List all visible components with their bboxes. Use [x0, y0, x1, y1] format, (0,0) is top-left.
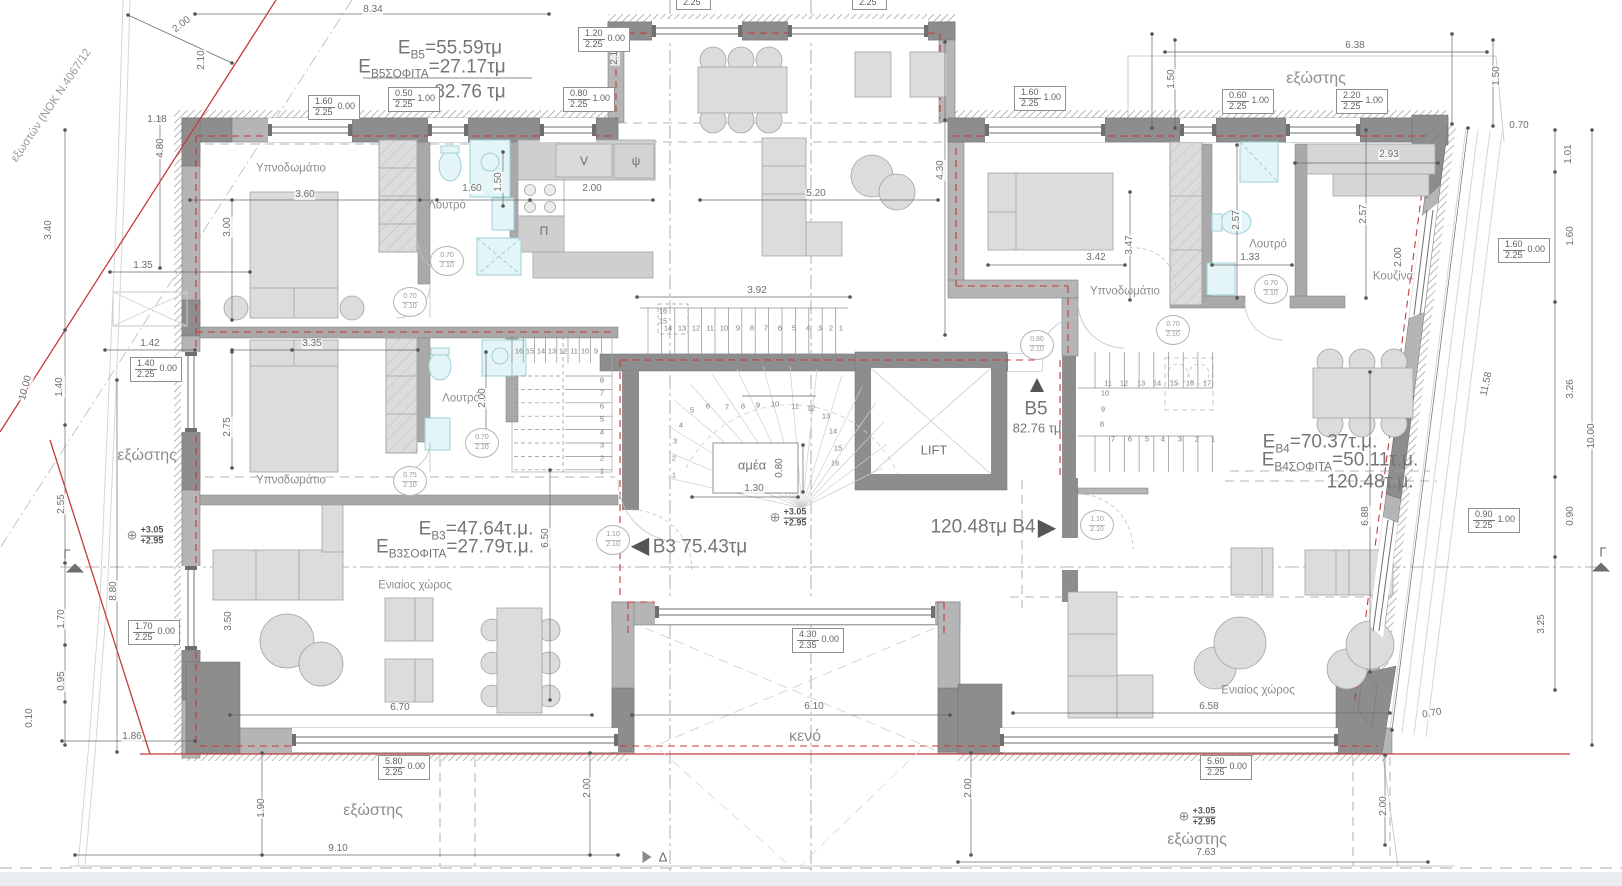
section-marker-label: Γ [1599, 545, 1606, 560]
stair-tread-number: 8 [1100, 420, 1104, 428]
window-tag: 0.602.251.00 [1222, 89, 1274, 114]
dimension-label: 6.38 [1344, 41, 1365, 51]
stair-tread-number: 1 [600, 467, 604, 475]
dimension-label: 1.35 [132, 261, 153, 271]
window-tag: 5.802.250.00 [378, 755, 430, 780]
door-tag: 0.702.10 [430, 246, 464, 276]
room-label: Λουτρό [442, 393, 480, 405]
apartment-area-label: B5 [1024, 400, 1047, 419]
dimension-label: 0.90 [1566, 505, 1576, 526]
window-tag: 0.502.25 [852, 0, 887, 10]
door-tag: 0.702.10 [1254, 274, 1288, 304]
apartment-area-label: B3 75.43τμ [653, 538, 748, 557]
stair-tread-number: 12 [807, 404, 815, 412]
dimension-label: 6.50 [541, 527, 551, 548]
dimension-label: 3.50 [224, 610, 234, 631]
dimension-label: 3.47 [1125, 234, 1135, 255]
apartment-marker-icon: ▲ [1025, 373, 1049, 397]
stair-tread-number: 11 [1104, 379, 1112, 387]
stair-tread-number: 3 [818, 324, 822, 332]
area-label: εξώστης [1167, 832, 1227, 848]
dimension-label: 2.00 [1379, 795, 1389, 816]
dimension-label: 1.33 [1239, 253, 1260, 263]
window-tag: 2.202.251.00 [1336, 89, 1388, 114]
dimension-label: 82.76 τμ [1013, 422, 1062, 435]
stair-tread-number: 4 [679, 421, 683, 429]
window-tag: 0.802.251.00 [563, 87, 615, 112]
stair-tread-number: 2 [600, 454, 604, 462]
stair-tread-number: 11 [791, 402, 799, 410]
dimension-label: 2.75 [223, 416, 233, 437]
window-tag: 1.202.250.00 [578, 27, 630, 52]
stair-tread-number: 16 [659, 307, 667, 315]
door-tag: 0.702.10 [1156, 315, 1190, 345]
room-label: Κουζίνα [1373, 271, 1413, 283]
apartment-area-label: EB4ΣΟΦΙΤΑ=50.11τ.μ. [1262, 451, 1419, 474]
dimension-label: 3.26 [1566, 378, 1576, 399]
window-tag: 0.902.251.00 [1468, 508, 1520, 533]
dimension-label: 0.70 [1421, 707, 1444, 721]
stair-tread-number: 5 [1145, 435, 1149, 443]
stair-tread-number: 16 [831, 459, 839, 467]
stair-tread-number: 13 [1137, 379, 1145, 387]
stair-tread-number: 8 [741, 402, 745, 410]
stair-tread-number: 1 [672, 471, 676, 479]
dimension-label: 2.57 [1359, 203, 1369, 224]
stair-tread-number: 9 [756, 401, 760, 409]
door-tag: 0.862.10 [1020, 330, 1054, 360]
stair-tread-number: 5 [792, 324, 796, 332]
dimension-label: V [580, 155, 588, 167]
dimension-label: 7.63 [1195, 848, 1216, 858]
dimension-label: 1.70 [57, 608, 67, 629]
dimension-label: 0.10 [25, 707, 35, 728]
apartment-area-label: 120.48τμ B4 [930, 518, 1035, 537]
dimension-label: 1.18 [146, 115, 167, 125]
level-marker: ⊕+3.05+2.95 [127, 526, 164, 547]
stair-tread-number: 13 [678, 324, 686, 332]
stair-tread-number: 2 [829, 324, 833, 332]
stair-tread-number: 5 [690, 406, 694, 414]
stair-tread-number: 1 [839, 324, 843, 332]
area-label: κενό [789, 729, 821, 745]
stair-tread-number: 7 [1111, 435, 1115, 443]
stair-tread-number: 9 [1101, 405, 1105, 413]
stair-tread-number: 8 [750, 324, 754, 332]
apartment-marker-icon: ◀ [631, 534, 649, 558]
dimension-label: 2.00 [1394, 246, 1404, 267]
stair-tread-number: 15 [1170, 379, 1178, 387]
dimension-label: LIFT [921, 444, 948, 457]
dimension-label: 1.30 [743, 484, 764, 494]
dimension-label: 1.60 [1566, 225, 1576, 246]
stair-tread-number: 17 [1203, 379, 1211, 387]
stair-tread-number: 10 [1101, 389, 1109, 397]
room-label: Υπνοδωμάτιο [256, 163, 326, 175]
dimension-label: 6.70 [389, 703, 410, 713]
apartment-area-label: 120.48τ.μ. [1326, 473, 1413, 492]
window-tag: 1.602.251.00 [1014, 86, 1066, 111]
dimension-label: 2.10 [197, 49, 207, 70]
area-label: εξώστης [1286, 71, 1346, 87]
floor-plan-sheet: εξωστών (ΝΟΚ Ν.4067/12EB5=55.59τμEB5ΣΟΦΙ… [0, 0, 1622, 886]
room-label: Λουτρό [1249, 239, 1287, 251]
stair-tread-number: 12 [692, 324, 700, 332]
dimension-label: 2.93 [1378, 150, 1399, 160]
apartment-marker-icon: ▶ [1038, 516, 1056, 540]
stair-tread-number: 13 [548, 347, 556, 355]
dimension-label: ψ [632, 155, 641, 167]
stair-tread-number: 15 [526, 347, 534, 355]
stair-tread-number: 6 [1128, 435, 1132, 443]
dimension-label: 5.20 [805, 189, 826, 199]
stair-tread-number: 2 [1195, 435, 1199, 443]
dimension-label: 3.60 [294, 190, 315, 200]
stair-tread-number: 8 [600, 376, 604, 384]
stair-tread-number: 4 [600, 428, 604, 436]
window-tag: 1.602.250.00 [1498, 238, 1550, 263]
dimension-label: 1.50 [1492, 65, 1502, 86]
stair-tread-number: 9 [736, 324, 740, 332]
door-tag: 1.102.10 [1080, 510, 1114, 540]
dimension-label: 6.88 [1361, 505, 1371, 526]
dimension-label: 1.86 [121, 732, 142, 742]
dimension-label: 0.95 [57, 670, 67, 691]
stair-tread-number: 14 [664, 324, 672, 332]
dimension-label: 2.00 [170, 14, 193, 35]
stair-tread-number: 14 [1153, 379, 1161, 387]
labels-layer: εξωστών (ΝΟΚ Ν.4067/12EB5=55.59τμEB5ΣΟΦΙ… [0, 0, 1622, 886]
area-label: εξώστης [117, 448, 177, 464]
stair-tread-number: 4 [1161, 435, 1165, 443]
stair-tread-number: 12 [1120, 379, 1128, 387]
dimension-label: 8.80 [109, 580, 119, 601]
stair-tread-number: 4 [806, 324, 810, 332]
dimension-label: 6.58 [1198, 702, 1219, 712]
dimension-label: 2.00 [478, 387, 488, 408]
apartment-area-label: EB5ΣΟΦΙΤΑ=27.17τμ [358, 58, 505, 81]
door-tag: 0.752.10 [393, 466, 427, 496]
dimension-label: 8.34 [362, 5, 383, 15]
apartment-area-label: EB3ΣΟΦΙΤΑ=27.79τ.μ. [376, 538, 534, 561]
dimension-label: 2.57 [1232, 209, 1242, 230]
level-marker: ⊕+3.05+2.95 [1179, 807, 1216, 828]
stair-tread-number: 10 [581, 347, 589, 355]
dimension-label: 2.55 [57, 493, 67, 514]
area-label: εξώστης [343, 803, 403, 819]
dimension-label: αμέα [738, 459, 766, 472]
stair-tread-number: 13 [822, 412, 830, 420]
dimension-label: 2.00 [964, 777, 974, 798]
stair-tread-number: 10 [720, 324, 728, 332]
room-label: Υπνοδωμάτιο [1090, 286, 1160, 298]
dimension-label: 10.00 [18, 374, 35, 403]
stair-tread-number: 10 [771, 400, 779, 408]
window-tag: 0.502.25 [676, 0, 711, 10]
dimension-label: 2.00 [583, 777, 593, 798]
room-label: Ενιαίος χώρος [1221, 685, 1295, 697]
sheet-footer-band [0, 872, 1622, 886]
dimension-label: 1.01 [1564, 143, 1574, 164]
stair-tread-number: 7 [600, 389, 604, 397]
section-marker-label: Δ [659, 850, 668, 865]
level-marker: ⊕+3.05+2.95 [770, 508, 807, 529]
dimension-label: Π [540, 225, 549, 237]
apartment-area-label: 82.76 τμ [434, 83, 505, 102]
dimension-label: 9.10 [327, 844, 348, 854]
dimension-label: 0.70 [1508, 121, 1529, 131]
stair-tread-number: 3 [1178, 435, 1182, 443]
stair-tread-number: 16 [1186, 379, 1194, 387]
stair-tread-number: 3 [673, 437, 677, 445]
stair-tread-number: 7 [764, 324, 768, 332]
dimension-label: 1.40 [55, 376, 65, 397]
stair-tread-number: 3 [600, 441, 604, 449]
stair-tread-number: 11 [706, 324, 714, 332]
section-marker-icon [643, 851, 652, 863]
stair-tread-number: 6 [600, 402, 604, 410]
dimension-label: 6.10 [803, 702, 824, 712]
stair-tread-number: 5 [600, 415, 604, 423]
stair-tread-number: 11 [570, 347, 578, 355]
dimension-label: 3.92 [746, 286, 767, 296]
section-marker-icon [1592, 563, 1610, 572]
stair-tread-number: 6 [706, 402, 710, 410]
dimension-label: 1.50 [1167, 68, 1177, 89]
room-label: Υπνοδωμάτιο [256, 475, 326, 487]
stair-tread-number: 2 [672, 454, 676, 462]
dimension-label: 10.00 [1587, 422, 1597, 449]
dimension-label: 0.80 [775, 457, 785, 478]
window-tag: 1.402.250.00 [130, 357, 182, 382]
stair-tread-number: 16 [515, 347, 523, 355]
dimension-label: 1.50 [494, 171, 504, 192]
window-tag: 4.302.350.00 [792, 628, 844, 653]
dimension-label: 1.90 [257, 797, 267, 818]
dimension-label: 3.25 [1537, 613, 1547, 634]
stair-tread-number: 14 [537, 347, 545, 355]
dimension-label: 4.80 [156, 137, 166, 158]
section-marker-icon [66, 564, 84, 573]
stair-tread-number: 6 [778, 324, 782, 332]
stair-tread-number: 14 [829, 427, 837, 435]
dimension-label: 3.42 [1085, 253, 1106, 263]
boundary-note: εξωστών (ΝΟΚ Ν.4067/12 [10, 47, 94, 164]
door-tag: 0.702.10 [393, 287, 427, 317]
dimension-label: 1.42 [139, 339, 160, 349]
dimension-label: 11.58 [1479, 370, 1494, 398]
stair-tread-number: 7 [725, 403, 729, 411]
dimension-label: 3.40 [44, 219, 54, 240]
window-tag: 0.502.251.00 [388, 87, 440, 112]
section-marker-label: Γ [63, 547, 70, 562]
stair-tread-number: 1 [1211, 435, 1215, 443]
room-label: Ενιαίος χώρος [378, 580, 452, 592]
stair-tread-number: 15 [834, 444, 842, 452]
dimension-label: 3.35 [301, 339, 322, 349]
room-label: Λουτρό [428, 200, 466, 212]
dimension-label: 2.00 [581, 184, 602, 194]
window-tag: 1.602.250.00 [308, 95, 360, 120]
stair-tread-number: 12 [559, 347, 567, 355]
door-tag: 0.702.10 [465, 428, 499, 458]
door-tag: 1.102.10 [596, 525, 630, 555]
dimension-label: 3.00 [223, 216, 233, 237]
window-tag: 1.702.250.00 [128, 620, 180, 645]
stair-tread-number: 9 [594, 347, 598, 355]
dimension-label: 1.60 [461, 184, 482, 194]
dimension-label: 4.30 [936, 159, 946, 180]
window-tag: 5.602.250.00 [1200, 755, 1252, 780]
